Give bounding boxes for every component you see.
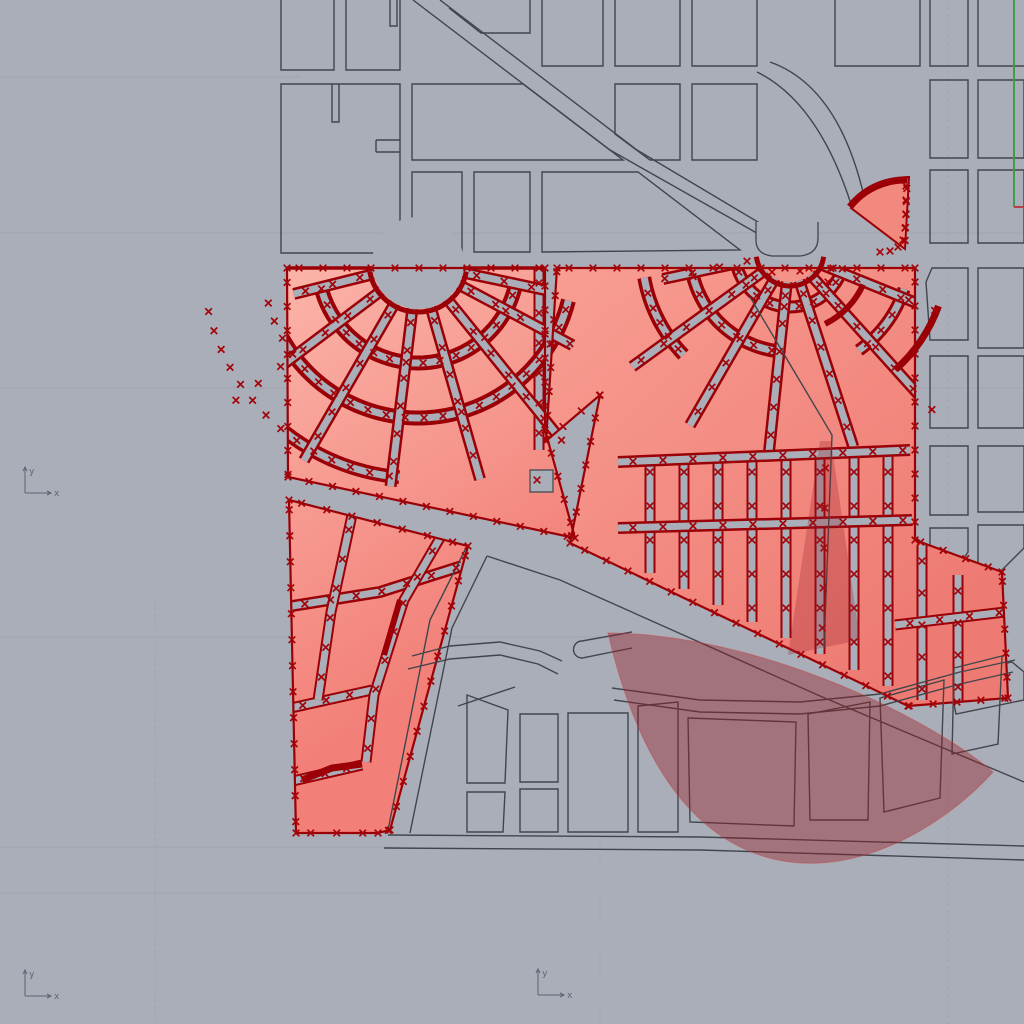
fan-plaza-west [372,217,464,309]
axis-gizmo-y-label: y [29,970,35,980]
axis-gizmo-x-label: x [54,992,60,1002]
cad-viewport[interactable]: yxyxyx [0,0,1024,1024]
axis-gizmo-x-label: x [54,489,60,499]
notch-block [530,470,553,492]
axis-gizmo-y-label: y [542,969,548,979]
viewport-canvas[interactable]: yxyxyx [0,0,1024,1024]
fan-plaza-east [756,222,818,256]
axis-gizmo-x-label: x [567,991,573,1001]
axis-gizmo-y-label: y [29,467,35,477]
